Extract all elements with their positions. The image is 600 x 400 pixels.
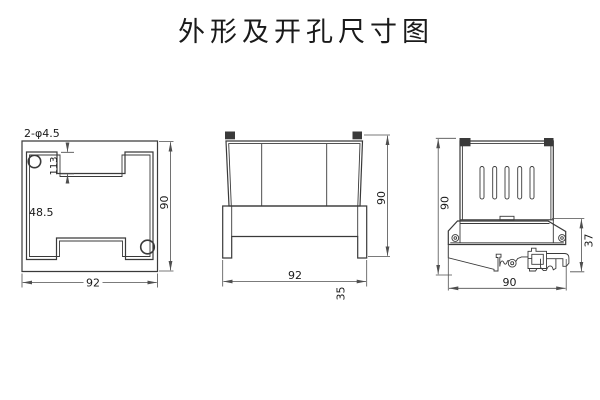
- side-width-label: 90: [503, 276, 517, 289]
- cutout-height-label: 90: [158, 196, 171, 210]
- cutout-width-label: 92: [86, 277, 100, 290]
- vent-slot: [505, 167, 509, 200]
- hole-callout-label: 2-φ4.5: [24, 127, 60, 140]
- vent-slot: [530, 167, 534, 200]
- drawing-page: 外形及开孔尺寸图 2-φ4.5 48.5 113 90 92: [0, 0, 600, 400]
- front-width-label: 92: [288, 269, 302, 282]
- terminal-screw-right: [559, 235, 566, 242]
- side-view: 90 37 90: [436, 138, 596, 291]
- mount-hole-bottom-right: [141, 240, 155, 254]
- terminal-screw-right-center: [561, 237, 564, 240]
- side-clip-right: [544, 138, 554, 146]
- foot-slope-and-spring: [448, 245, 508, 272]
- terminal-flange: [448, 221, 565, 245]
- din-rail-section: [547, 254, 569, 267]
- notch-dim-ticks: [61, 152, 74, 174]
- front-depth-label: 35: [335, 287, 348, 301]
- bezel-inner-lines: [232, 206, 358, 237]
- terminal-flange-inner-lines: [450, 220, 564, 243]
- dimension-drawing-canvas: 外形及开孔尺寸图 2-φ4.5 48.5 113 90 92: [0, 0, 600, 400]
- vent-slots: [480, 167, 534, 200]
- bezel-flange: [223, 206, 367, 258]
- side-case-body: [460, 141, 553, 220]
- vent-slot: [518, 167, 522, 200]
- foot-link: [516, 257, 528, 262]
- panel-cutout-view: 2-φ4.5 48.5 113 90 92: [22, 127, 174, 290]
- terminal-screw-left-center: [454, 237, 457, 240]
- notch-depth-label: 113: [49, 156, 60, 175]
- vent-slot: [480, 167, 484, 200]
- foot-hole: [508, 259, 516, 267]
- side-dim-label: 48.5: [29, 206, 54, 219]
- case-body-inner-echo: [229, 144, 360, 206]
- side-clip-left: [460, 138, 471, 146]
- front-height-label: 90: [375, 191, 388, 205]
- din-rail-foot: [448, 245, 569, 272]
- side-lower-label: 37: [583, 234, 596, 248]
- mount-clip-left: [225, 132, 235, 140]
- page-title: 外形及开孔尺寸图: [178, 17, 434, 47]
- side-case-inner-echo: [462, 143, 551, 219]
- case-division-lines: [262, 144, 327, 206]
- mount-clip-right: [353, 132, 363, 140]
- vent-slot: [493, 167, 497, 200]
- rail-clamp: [528, 248, 547, 268]
- side-height-label: 90: [438, 196, 451, 210]
- foot-hole-center: [511, 262, 514, 265]
- mount-hole-top-left: [28, 155, 40, 167]
- front-view: 92 90 35: [223, 132, 390, 301]
- case-body: [226, 141, 363, 206]
- terminal-screw-left: [452, 235, 459, 242]
